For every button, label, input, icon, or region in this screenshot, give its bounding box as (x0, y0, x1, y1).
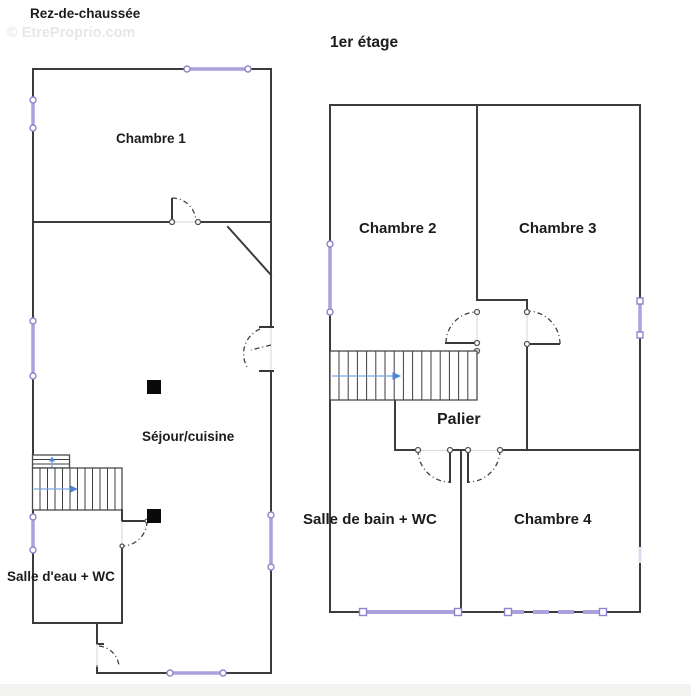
ground-floor-title: Rez-de-chaussée (30, 7, 140, 22)
column-marker (147, 380, 161, 394)
floor-plans-drawing (0, 0, 691, 696)
interior-wall (33, 198, 271, 225)
first-floor-title: 1er étage (330, 34, 398, 51)
watermark: © EtreProprio.com (7, 26, 135, 42)
room-label-salle-eau-wc: Salle d'eau + WC (7, 570, 115, 585)
bathroom-door (120, 510, 149, 623)
first-floor-plan (327, 105, 643, 616)
entrance-door (97, 644, 119, 667)
diagonal-wall (228, 227, 271, 275)
windows (327, 241, 643, 616)
room-label-chambre-3: Chambre 3 (519, 221, 597, 238)
room-label-salle-de-bain-wc: Salle de bain + WC (303, 512, 437, 529)
column-marker (147, 509, 161, 523)
room-label-palier: Palier (437, 411, 481, 429)
room-label-chambre-2: Chambre 2 (359, 221, 437, 238)
bedroom-doors-top (445, 310, 560, 354)
room-label-chambre-1: Chambre 1 (116, 132, 186, 147)
floor-plan-image: Rez-de-chaussée © EtreProprio.com 1er ét… (0, 0, 691, 696)
bedroom-doors-bottom (416, 448, 503, 484)
room-label-sejour-cuisine: Séjour/cuisine (142, 430, 234, 445)
staircase (330, 351, 477, 400)
french-door (244, 327, 274, 371)
staircase (33, 455, 123, 510)
bottom-gray-strip (0, 684, 691, 696)
room-label-chambre-4: Chambre 4 (514, 512, 592, 529)
